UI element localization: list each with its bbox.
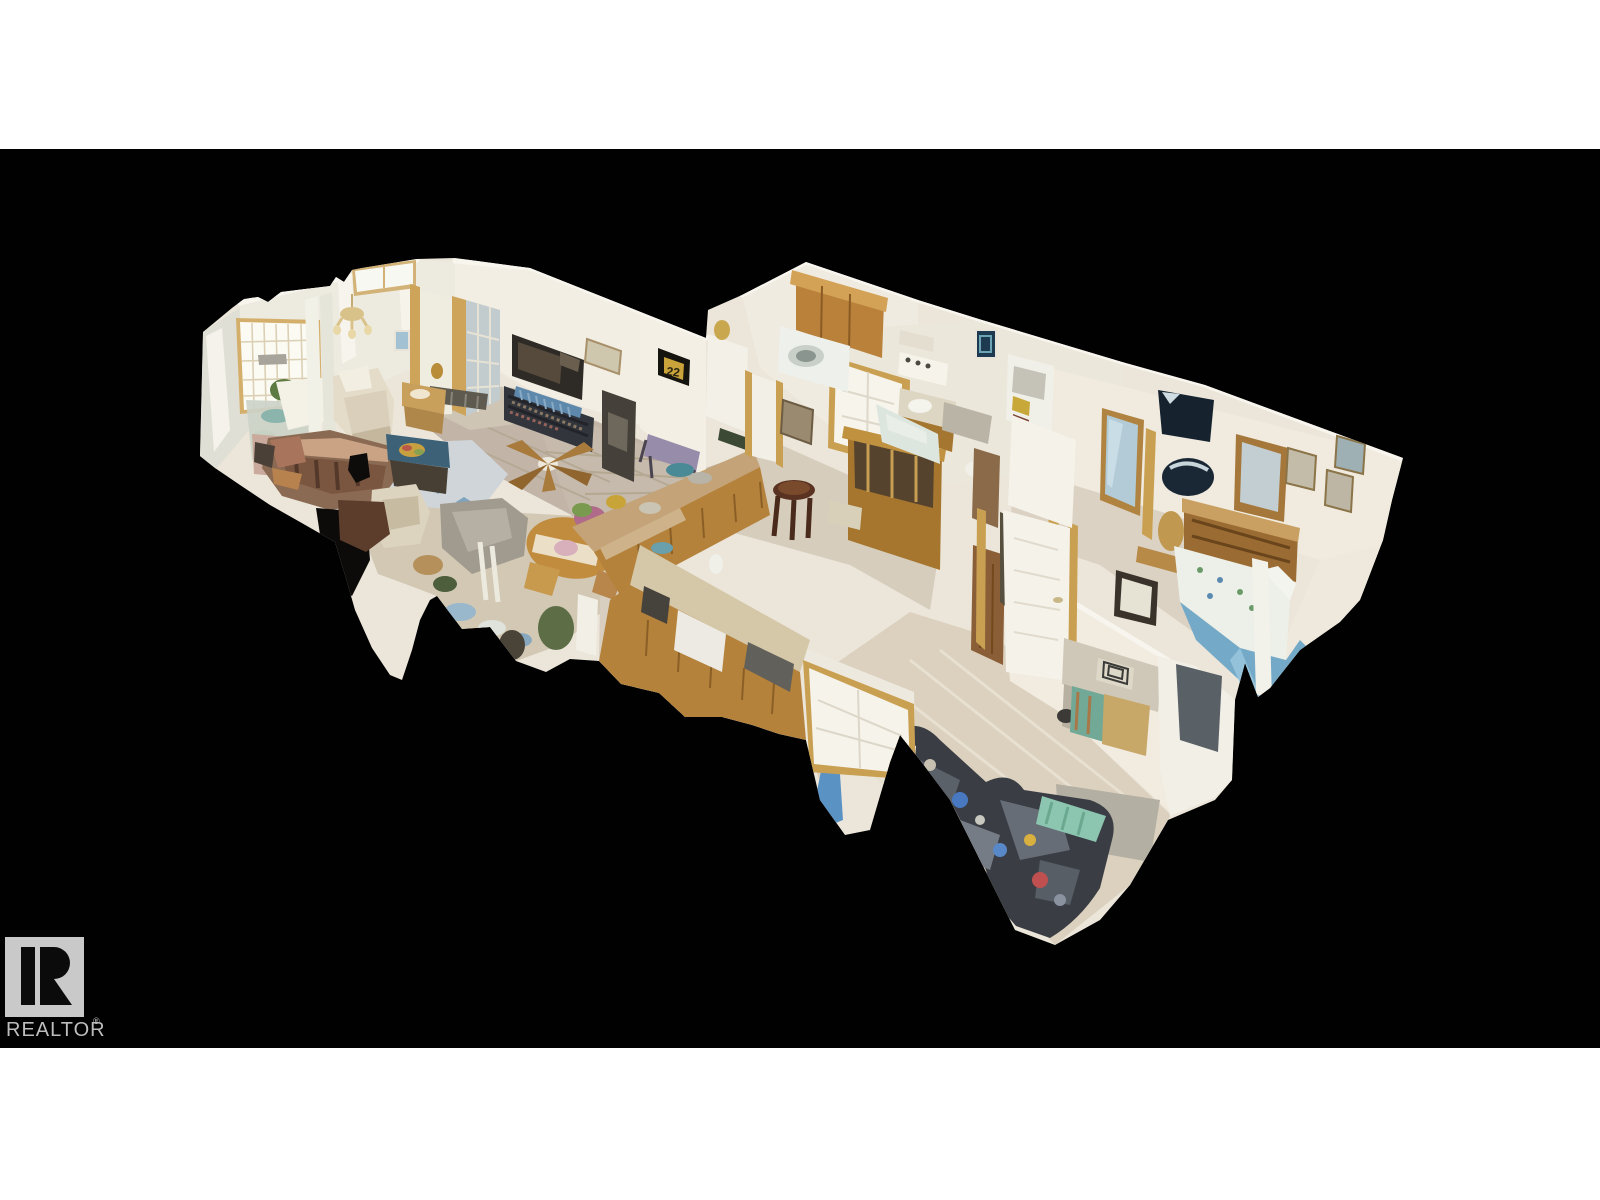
svg-text:22: 22 — [666, 364, 681, 380]
svg-text:REALTOR: REALTOR — [6, 1019, 106, 1041]
svg-text:®: ® — [93, 1016, 100, 1026]
